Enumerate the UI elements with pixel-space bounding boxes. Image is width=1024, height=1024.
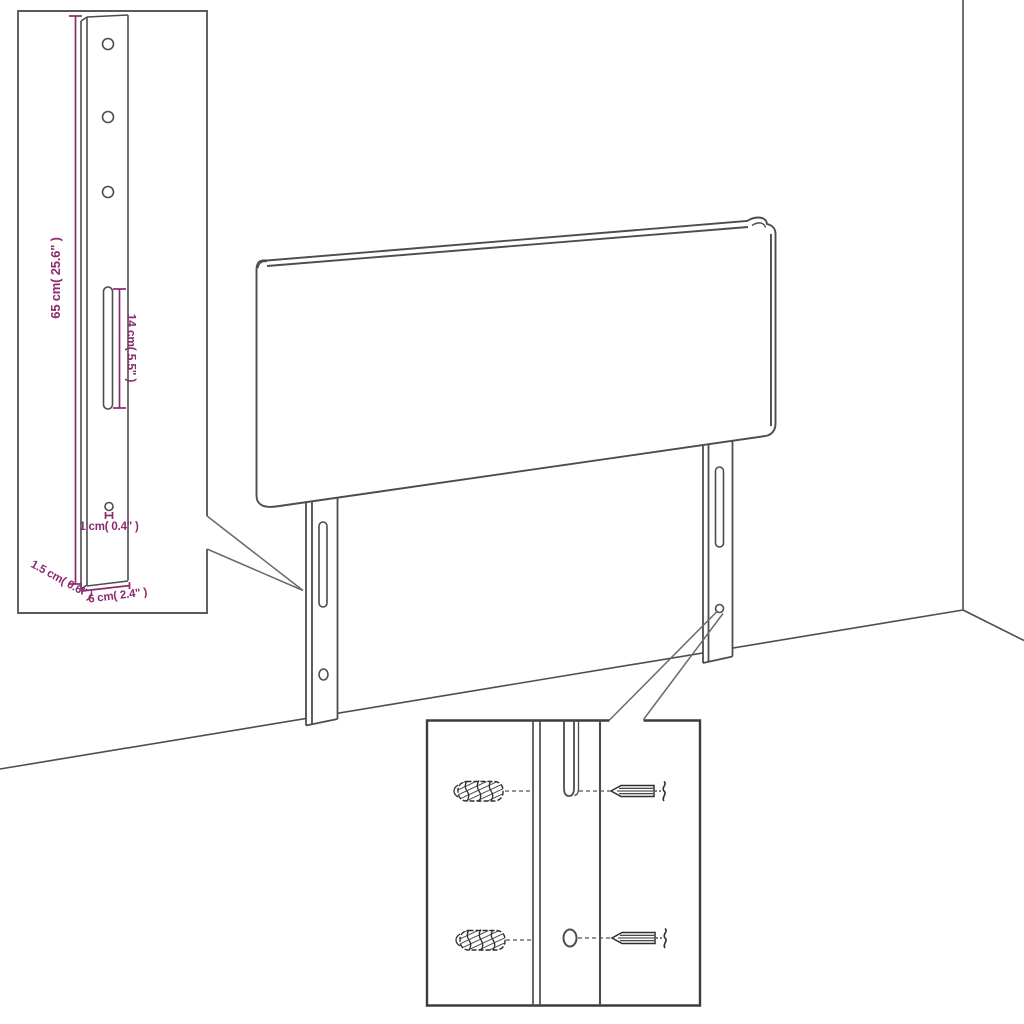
headboard-left-leg [306,472,338,726]
callout-wedge-top [207,516,303,591]
diagram-canvas: 65 cm( 25.6" ) 14 cm( 5.5" ) 1 cm( 0.4" … [0,0,1024,1024]
dim-label-65cm: 65 cm( 25.6" ) [48,237,63,318]
wall-plug-bottom [456,930,505,951]
floor-wall-line-right [963,610,1024,641]
detail-inset-bottom [427,721,700,1006]
headboard-diagram: 65 cm( 25.6" ) 14 cm( 5.5" ) 1 cm( 0.4" … [0,0,1024,1024]
wall-plug-top [454,781,503,802]
headboard-panel [257,218,776,507]
right-leg-slot [716,467,724,547]
left-leg-hole [319,669,328,680]
left-leg-slot [319,522,327,607]
dim-label-14cm: 14 cm( 5.5" ) [125,314,139,383]
dim-label-1cm: 1 cm( 0.4" ) [79,521,139,533]
headboard-right-leg [703,424,733,663]
